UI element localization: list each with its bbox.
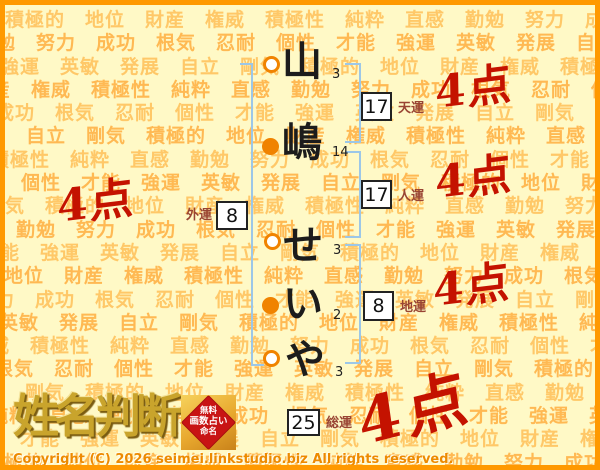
gaiun-label: 外運	[186, 209, 212, 222]
name-char-4: い	[283, 284, 323, 324]
tenun-value: 17	[364, 96, 388, 118]
char-3-marker-circle	[264, 233, 281, 250]
jinun-label: 人運	[398, 190, 424, 203]
site-logo[interactable]: 姓名判断	[13, 393, 177, 439]
jinun-value-box: 17	[361, 180, 392, 209]
name-char-1: 山	[282, 42, 322, 82]
name-char-2-strokes: 14	[332, 146, 349, 159]
jinun-score: 4点	[435, 152, 514, 206]
name-char-5: や	[285, 340, 325, 380]
souun-label: 総運	[326, 417, 352, 430]
background-word-line: 積極的 地位 財産 権威 積極性 純粋 直感 勤勉 努力 成功 根気 忍耐 個性…	[5, 9, 595, 32]
stamp-line-3: 命名	[189, 428, 227, 438]
gaiun-value-box: 8	[216, 201, 248, 230]
copyright-text: Copyright (C) 2026 seimei.linkstudio.biz…	[13, 452, 453, 467]
seimei-handan-page: 積極的 地位 財産 権威 積極性 純粋 直感 勤勉 努力 成功 根気 忍耐 個性…	[0, 0, 600, 470]
fullname-bracket	[251, 63, 253, 366]
stamp-text: 無料 画数占い 命名	[189, 407, 227, 437]
char-4-marker-circle	[262, 297, 279, 314]
fullname-bracket-bottom-tick	[251, 364, 264, 366]
souun-value: 25	[291, 412, 315, 434]
jinun-bracket	[345, 151, 361, 238]
name-char-1-strokes: 3	[332, 68, 340, 81]
tenun-score: 4点	[435, 62, 514, 116]
tenun-value-box: 17	[361, 92, 392, 121]
char-2-marker-circle	[262, 138, 279, 155]
jinun-value: 17	[364, 184, 388, 206]
chiun-value-box: 8	[363, 291, 394, 321]
chiun-score: 4点	[433, 260, 512, 314]
char-5-marker-circle	[263, 350, 280, 367]
chiun-label: 地運	[400, 301, 426, 314]
name-char-2: 嶋	[282, 123, 322, 163]
name-char-5-strokes: 3	[335, 366, 343, 379]
chiun-bracket	[345, 244, 361, 364]
gaiun-score: 4点	[57, 176, 136, 230]
chiun-value: 8	[372, 295, 384, 317]
char-1-marker-circle	[263, 56, 280, 73]
name-char-4-strokes: 2	[333, 309, 341, 322]
souun-value-box: 25	[287, 409, 320, 436]
name-char-3: せ	[283, 226, 323, 266]
tenun-bracket	[345, 63, 361, 143]
tenun-label: 天運	[398, 102, 424, 115]
free-naming-stamp[interactable]: 無料 画数占い 命名	[181, 395, 236, 450]
name-char-3-strokes: 3	[333, 244, 341, 257]
gaiun-value: 8	[226, 205, 238, 227]
